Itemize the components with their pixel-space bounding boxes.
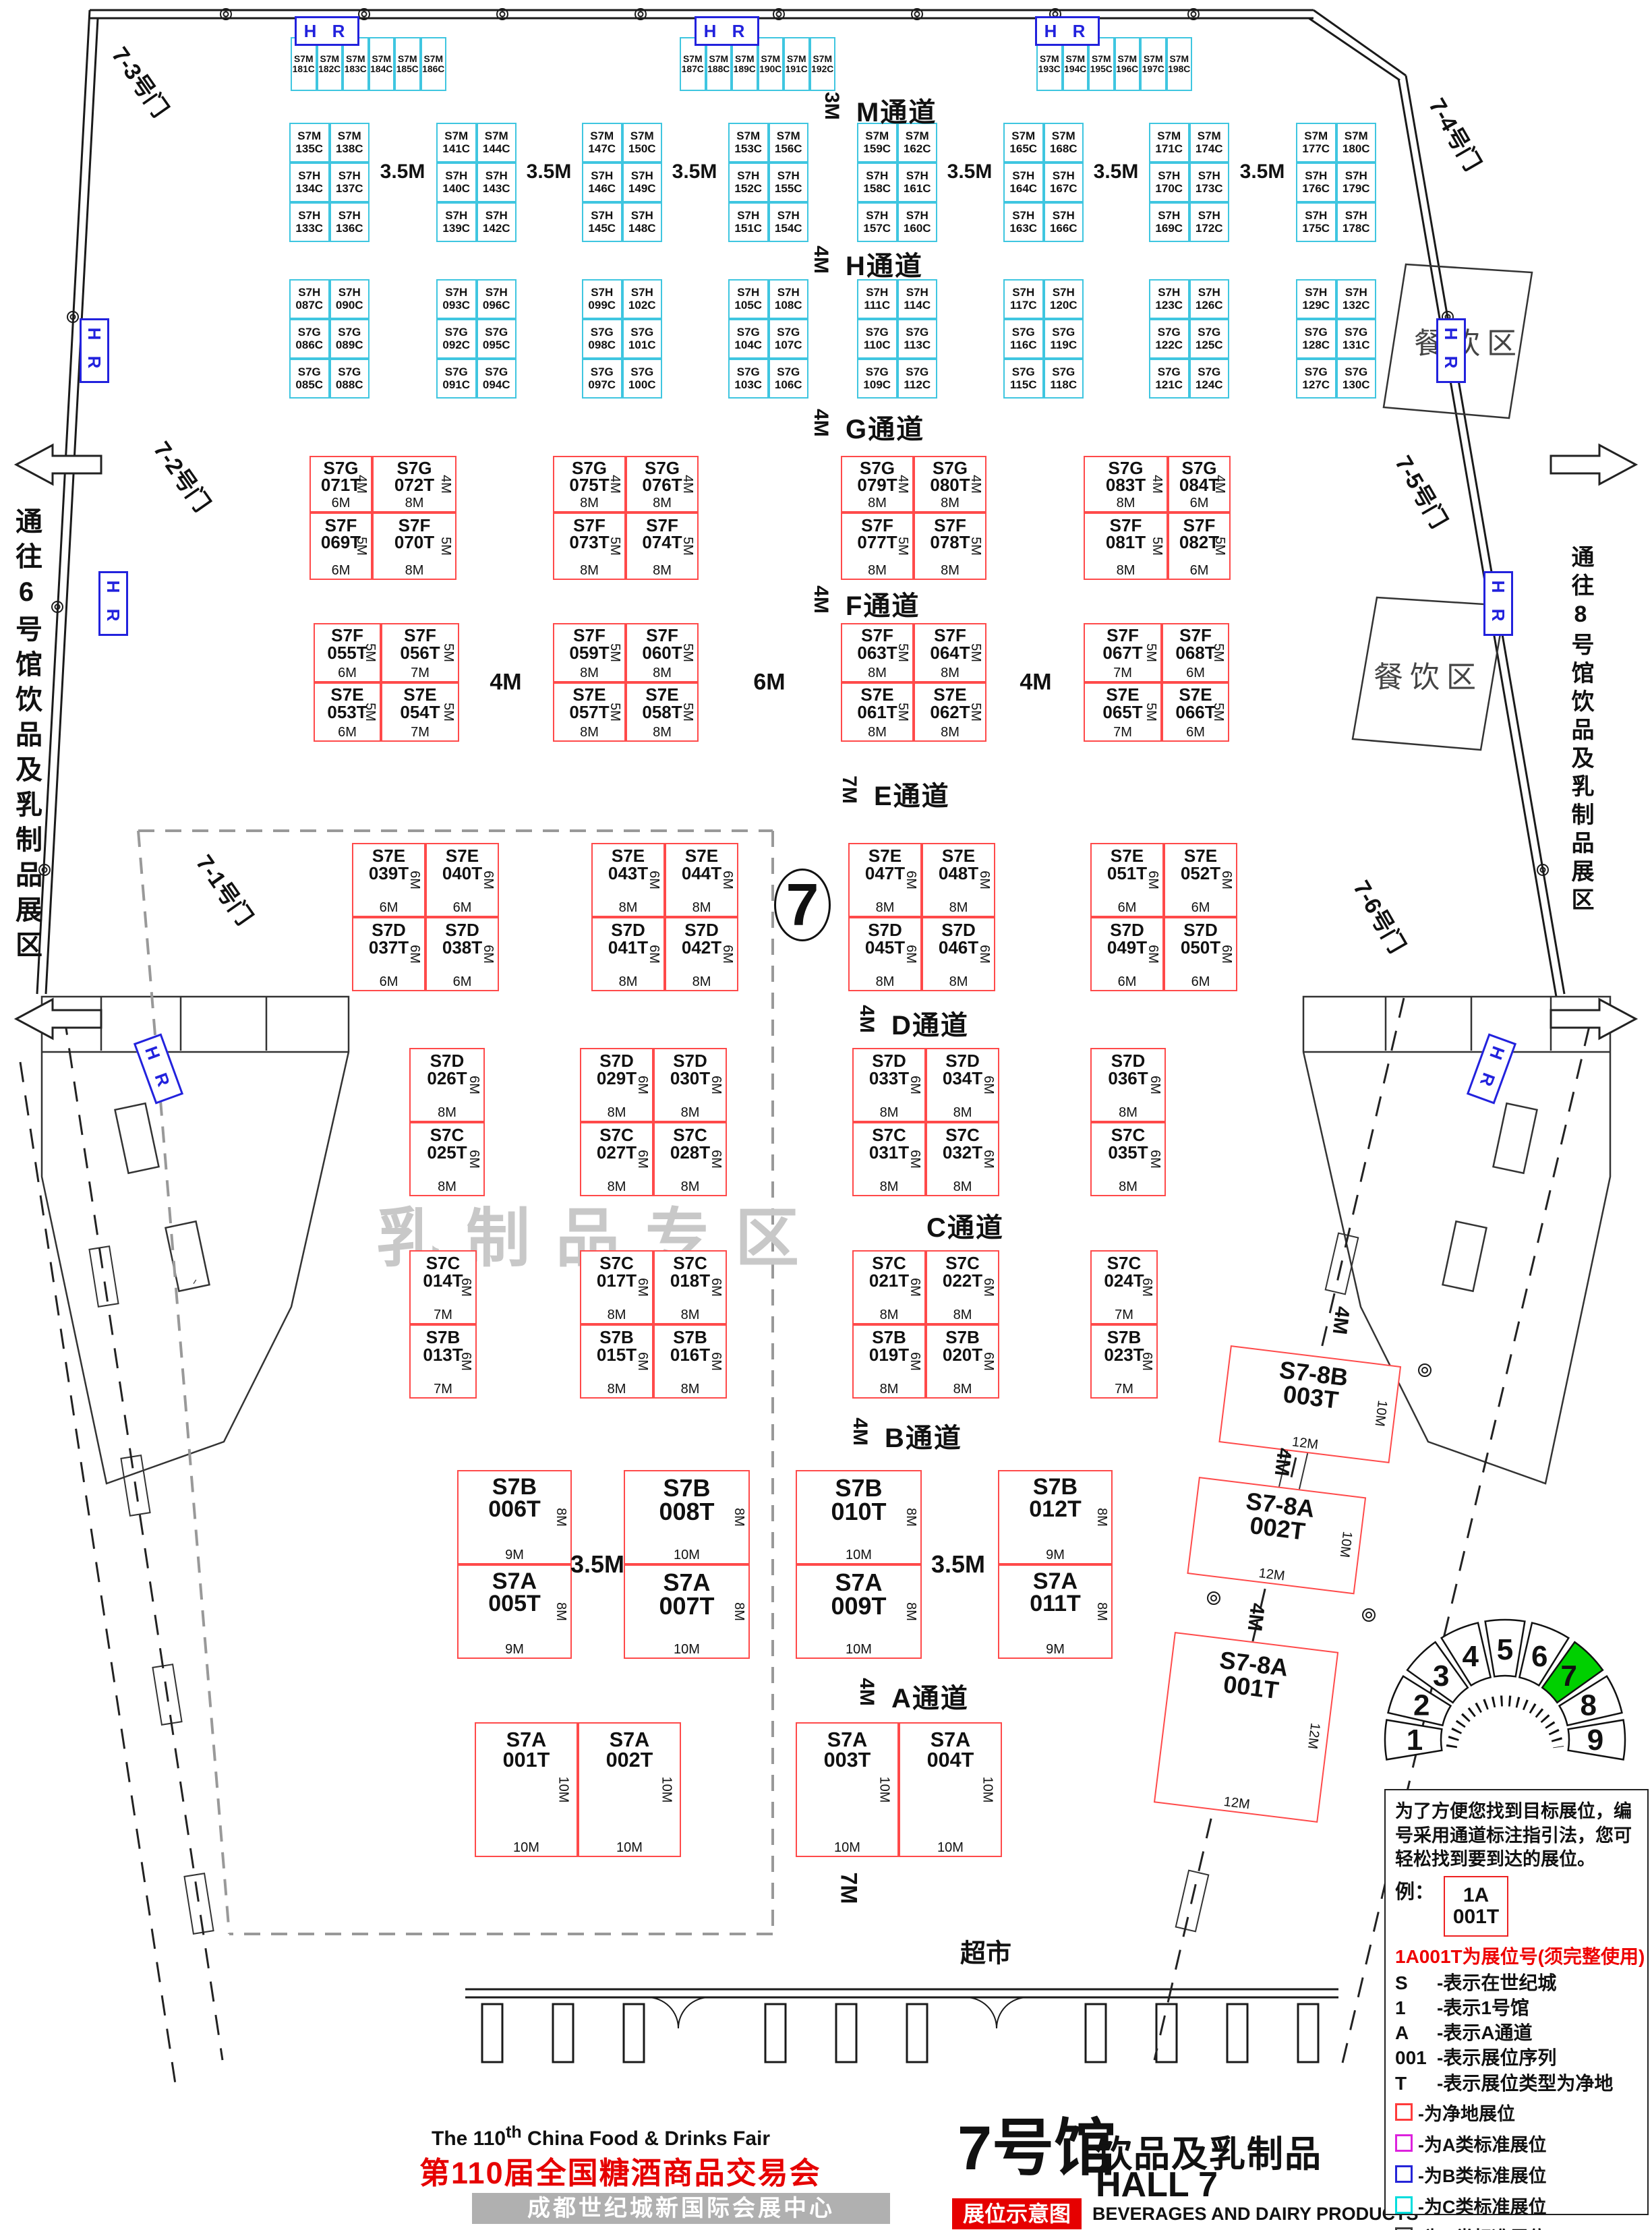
legend-swatch-item: -为B类标准展位 [1395, 2161, 1639, 2188]
locator-hall-number: 6 [1531, 1640, 1547, 1673]
legend-red-note: 1A001T为展位号(须完整使用) [1395, 1942, 1639, 1969]
legend-code-item: S-表示在世纪城 [1395, 1972, 1639, 1994]
legend-swatch-item: -为D类标准展位 [1395, 2223, 1639, 2230]
legend-example-booth: 1A 001T [1444, 1876, 1508, 1937]
legend-swatch-item: -为净地展位 [1395, 2099, 1639, 2125]
legend-swatch-label: -为净地展位 [1418, 2099, 1515, 2125]
example-booth-line2: 001T [1453, 1906, 1499, 1928]
locator-hall-number: 9 [1587, 1724, 1603, 1757]
legend-swatch-label: -为A类标准展位 [1418, 2130, 1547, 2156]
legend-code-desc: -表示A通道 [1437, 2022, 1533, 2044]
legend-example-label: 例： [1395, 1876, 1434, 1904]
legend-code-item: 1-表示1号馆 [1395, 1997, 1639, 2019]
locator-hall-number: 4 [1462, 1640, 1479, 1673]
booth-type-swatch [1395, 2196, 1413, 2214]
legend-code-item: A-表示A通道 [1395, 2022, 1639, 2044]
locator-tick-arc [1452, 1701, 1558, 1747]
legend-code-item: T-表示展位类型为净地 [1395, 2073, 1639, 2094]
legend-code-key: T [1395, 2073, 1437, 2094]
booth-type-swatch [1395, 2227, 1413, 2230]
booth-type-swatch [1395, 2134, 1413, 2152]
legend-code-key: S [1395, 1972, 1437, 1994]
legend-code-key: 1 [1395, 1997, 1437, 2019]
legend-swatch-item: -为C类标准展位 [1395, 2192, 1639, 2219]
locator-hall-number: 8 [1581, 1689, 1597, 1722]
legend-swatches: -为净地展位-为A类标准展位-为B类标准展位-为C类标准展位-为D类标准展位 [1395, 2099, 1639, 2230]
legend-code-key: 001 [1395, 2047, 1437, 2069]
locator-hall-number: 7 [1561, 1660, 1577, 1693]
legend-swatch-label: -为C类标准展位 [1418, 2192, 1547, 2219]
legend-code-desc: -表示1号馆 [1437, 1997, 1529, 2019]
legend-code-desc: -表示在世纪城 [1437, 1972, 1556, 1994]
legend-code-desc: -表示展位序列 [1437, 2047, 1556, 2069]
locator-hall-number: 5 [1497, 1633, 1513, 1666]
booth-type-swatch [1395, 2165, 1413, 2183]
legend-panel: 为了方便您找到目标展位，编号采用通道标注指引法，您可轻松找到要到达的展位。 例：… [1384, 1789, 1649, 2215]
legend-swatch-label: -为D类标准展位 [1418, 2223, 1547, 2230]
locator-hall-number: 2 [1413, 1689, 1429, 1722]
booth-type-swatch [1395, 2103, 1413, 2121]
legend-swatch-item: -为A类标准展位 [1395, 2130, 1639, 2156]
locator-hall-number: 1 [1407, 1724, 1423, 1757]
legend-code-desc: -表示展位类型为净地 [1437, 2073, 1613, 2094]
legend-code-item: 001-表示展位序列 [1395, 2047, 1639, 2069]
example-booth-line1: 1A [1463, 1885, 1489, 1906]
floor-plan: 乳制品专区 7 S7M181CS7M182CS7M183CS7M184CS7M1… [0, 0, 1652, 2230]
legend-swatch-label: -为B类标准展位 [1418, 2161, 1547, 2188]
legend-code-key: A [1395, 2022, 1437, 2044]
locator-hall-number: 3 [1433, 1660, 1449, 1693]
legend-code-items: S-表示在世纪城1-表示1号馆A-表示A通道001-表示展位序列T-表示展位类型… [1395, 1972, 1639, 2094]
legend-intro: 为了方便您找到目标展位，编号采用通道标注指引法，您可轻松找到要到达的展位。 [1395, 1800, 1639, 1872]
